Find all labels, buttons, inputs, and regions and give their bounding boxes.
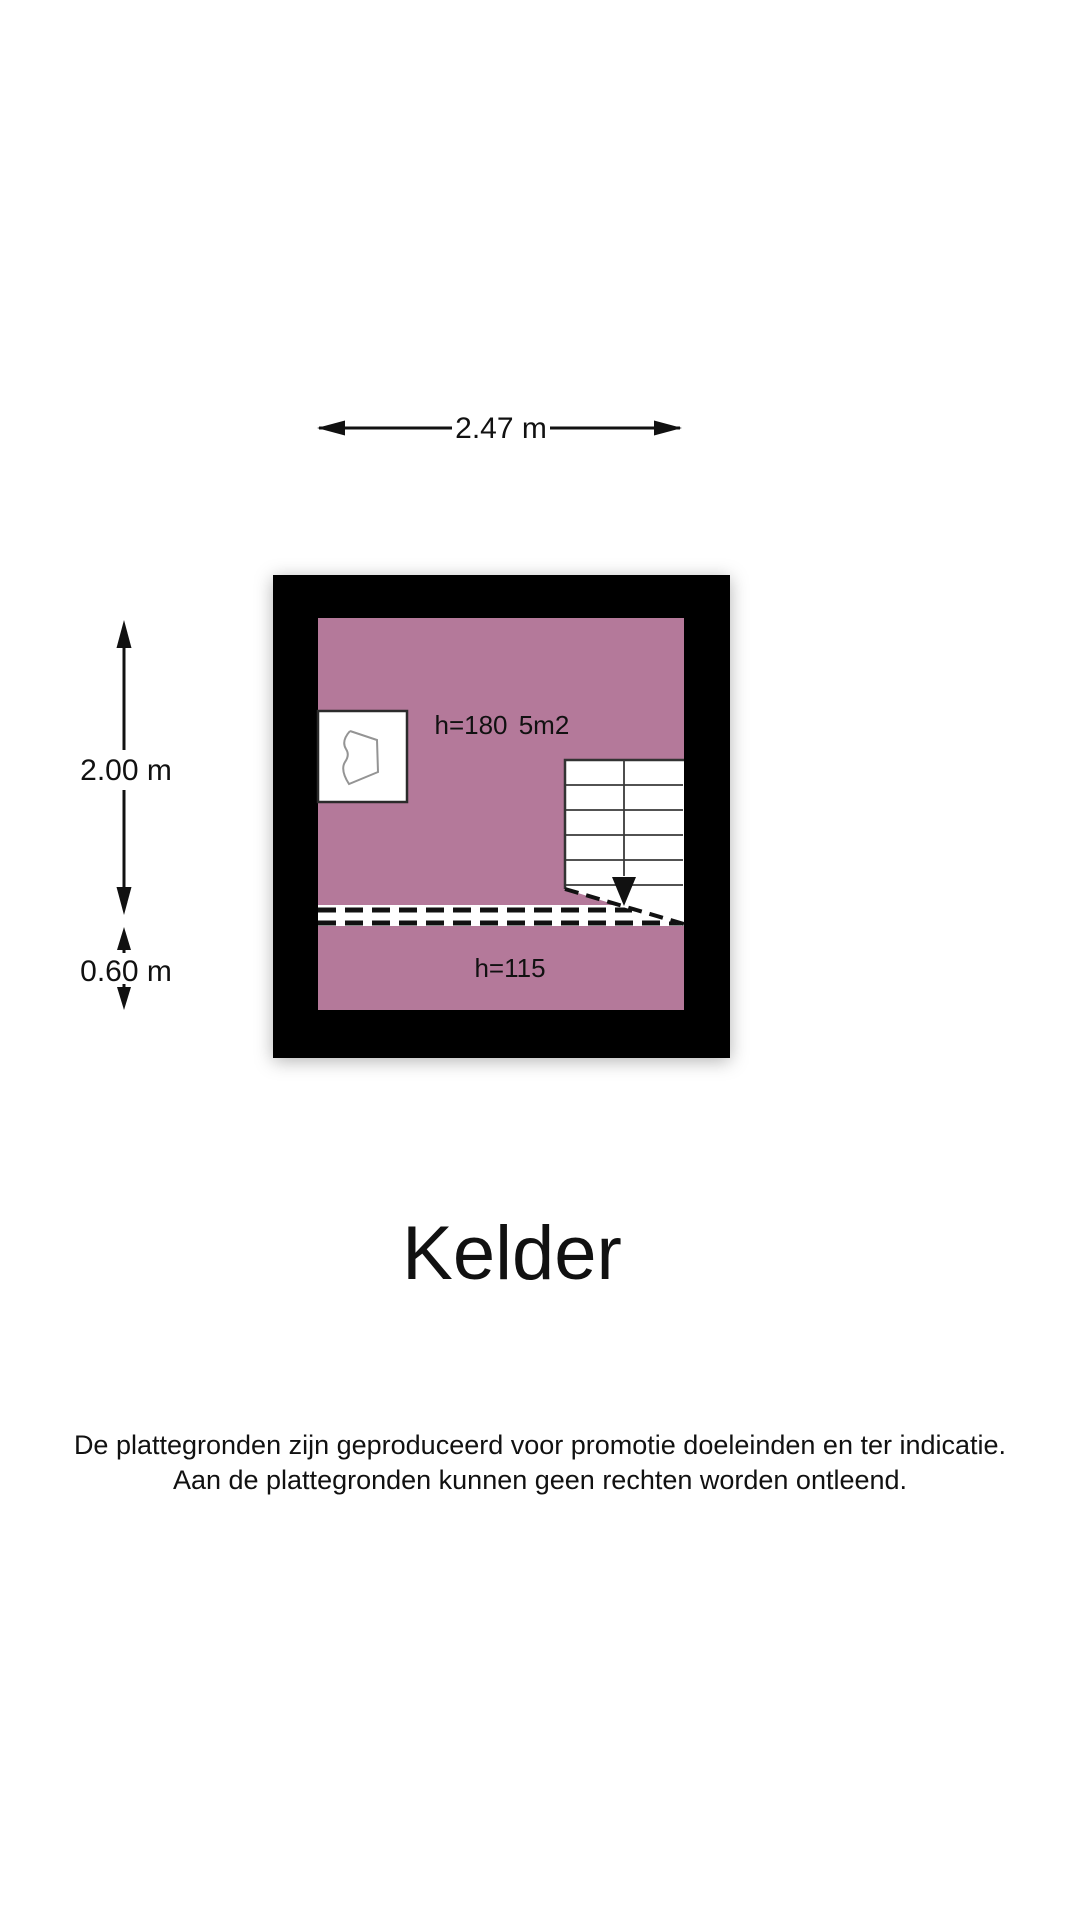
- floorplan-page: 2.47 m 2.00 m 0.60 m: [0, 0, 1080, 1920]
- arrow-right-icon: [654, 421, 682, 436]
- arrow-down-icon: [117, 987, 131, 1010]
- disclaimer-line-1: De plattegronden zijn geproduceerd voor …: [0, 1428, 1080, 1463]
- disclaimer-line-2: Aan de plattegronden kunnen geen rechten…: [0, 1463, 1080, 1498]
- floor-plan: h=180 5m2 h=115: [273, 575, 730, 1058]
- lower-room-height-label: h=115: [474, 953, 545, 983]
- disclaimer: De plattegronden zijn geproduceerd voor …: [0, 1428, 1080, 1498]
- floorplan-drawing: 2.47 m 2.00 m 0.60 m: [0, 0, 1080, 1920]
- lower-height-dimension-label: 0.60 m: [80, 955, 172, 988]
- arrow-up-icon: [117, 927, 131, 950]
- room-area-label: 5m2: [519, 710, 570, 740]
- main-height-dimension: 2.00 m: [80, 620, 172, 915]
- page-title: Kelder: [402, 1216, 622, 1292]
- arrow-up-icon: [117, 620, 132, 648]
- main-height-dimension-label: 2.00 m: [80, 754, 172, 787]
- room-height-label: h=180: [434, 710, 507, 740]
- arrow-down-icon: [117, 887, 132, 915]
- width-dimension: 2.47 m: [317, 412, 682, 445]
- arrow-left-icon: [317, 421, 345, 436]
- lower-height-dimension: 0.60 m: [80, 927, 172, 1010]
- cellar-window: [318, 711, 407, 802]
- width-dimension-label: 2.47 m: [455, 412, 547, 445]
